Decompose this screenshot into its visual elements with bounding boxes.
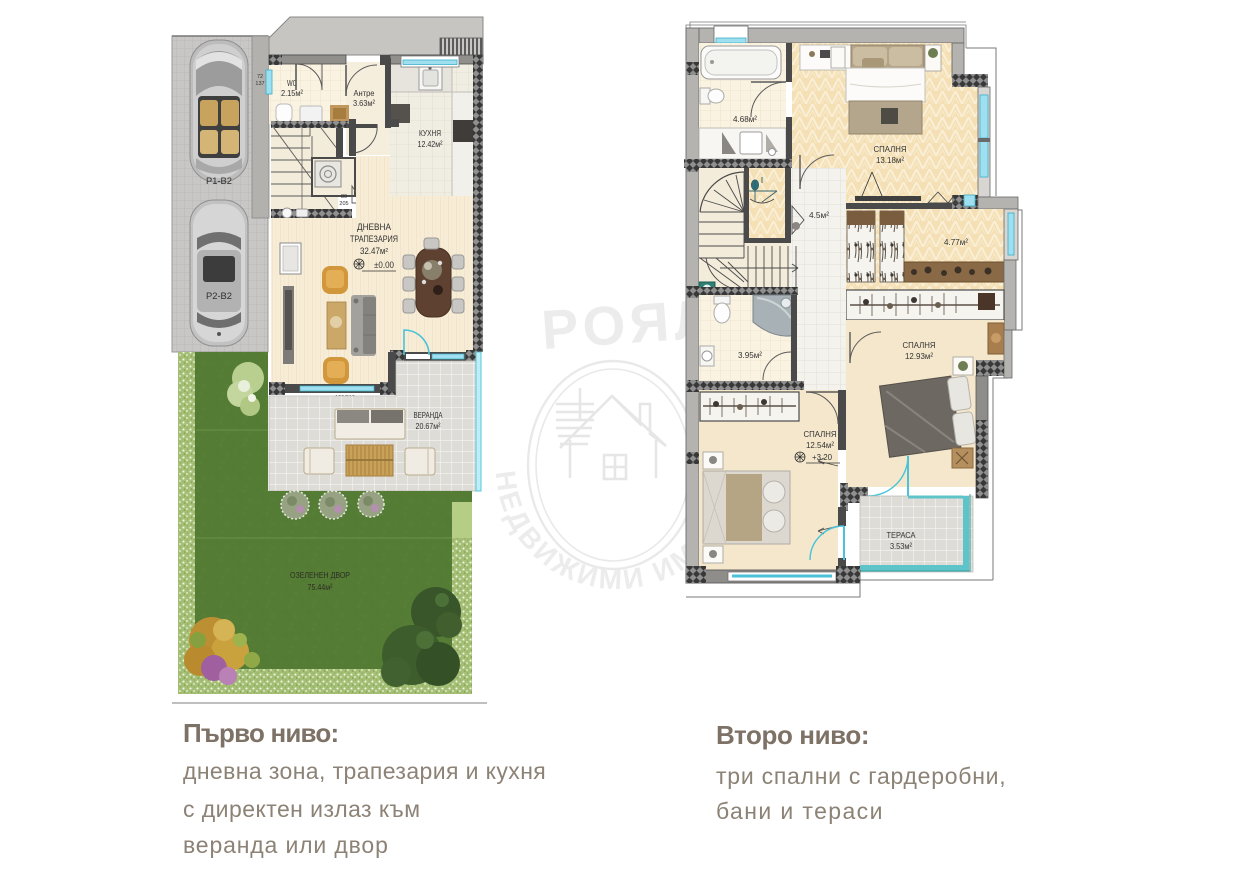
svg-text:+3.20: +3.20: [812, 452, 832, 462]
svg-text:Първо ниво:: Първо ниво:: [183, 718, 338, 748]
svg-text:ТЕРАСА: ТЕРАСА: [887, 530, 916, 540]
svg-text:дневна зона, трапезария и кухн: дневна зона, трапезария и кухня: [183, 758, 546, 784]
svg-text:4.68м²: 4.68м²: [733, 114, 757, 124]
svg-text:20.67м²: 20.67м²: [416, 421, 441, 431]
svg-text:32.47м²: 32.47м²: [360, 246, 388, 256]
svg-text:Второ ниво:: Второ ниво:: [716, 720, 869, 750]
svg-text:12.93м²: 12.93м²: [905, 351, 933, 361]
svg-text:12.54м²: 12.54м²: [806, 440, 834, 450]
svg-text:13.18м²: 13.18м²: [876, 155, 904, 165]
svg-text:137: 137: [255, 81, 264, 87]
svg-text:ВЕРАНДА: ВЕРАНДА: [414, 410, 443, 420]
svg-text:СПАЛНЯ: СПАЛНЯ: [804, 429, 837, 439]
svg-text:12.42м²: 12.42м²: [418, 139, 443, 149]
svg-text:ТРАПЕЗАРИЯ: ТРАПЕЗАРИЯ: [350, 234, 398, 244]
svg-text:три спални с гардеробни,: три спални с гардеробни,: [716, 763, 1006, 789]
svg-text:72: 72: [257, 74, 263, 80]
svg-text:P2-B2: P2-B2: [206, 291, 232, 301]
svg-text:P1-B2: P1-B2: [206, 176, 232, 186]
svg-text:3.63м²: 3.63м²: [353, 98, 375, 108]
svg-text:205: 205: [339, 201, 348, 207]
svg-text:с директен излаз към: с директен излаз към: [183, 796, 421, 822]
svg-text:бани и тераси: бани и тераси: [716, 798, 884, 824]
svg-text:ОЗЕЛЕНЕН ДВОР: ОЗЕЛЕНЕН ДВОР: [290, 570, 350, 580]
svg-text:75.44м²: 75.44м²: [308, 582, 333, 592]
svg-text:КУХНЯ: КУХНЯ: [419, 128, 441, 138]
svg-text:2.15м²: 2.15м²: [281, 88, 303, 98]
svg-text:ДНЕВНА: ДНЕВНА: [357, 222, 391, 232]
svg-text:веранда или двор: веранда или двор: [183, 832, 389, 858]
svg-text:Антре: Антре: [354, 88, 375, 98]
svg-text:3.95м²: 3.95м²: [738, 350, 762, 360]
svg-text:СПАЛНЯ: СПАЛНЯ: [903, 340, 936, 350]
svg-text:СПАЛНЯ: СПАЛНЯ: [874, 144, 907, 154]
svg-text:4.77м²: 4.77м²: [944, 237, 968, 247]
svg-text:80: 80: [341, 194, 347, 200]
svg-text:4.5м²: 4.5м²: [809, 210, 829, 220]
svg-text:3.53м²: 3.53м²: [890, 541, 912, 551]
svg-text:±0.00: ±0.00: [374, 260, 394, 270]
